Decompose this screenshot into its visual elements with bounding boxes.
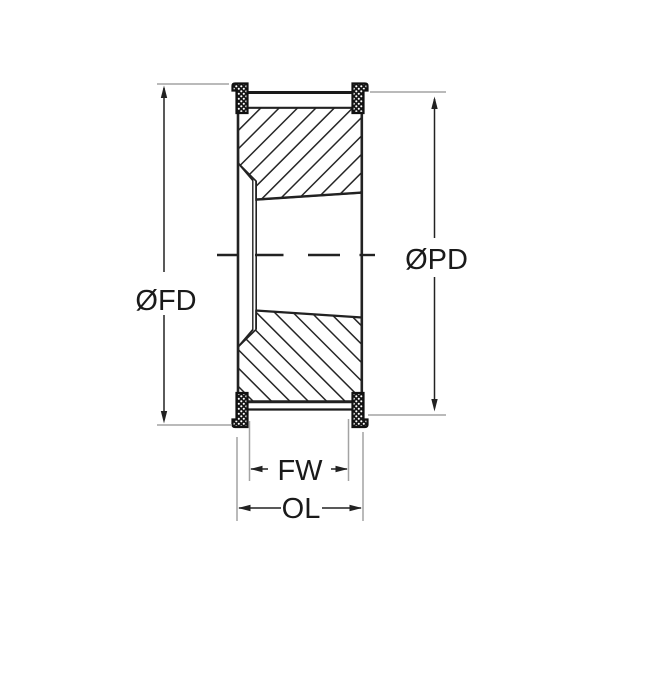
pd-label: ØPD [405, 244, 468, 276]
drawing-canvas: ØFD ØPD FW OL [0, 0, 670, 670]
fd-label: ØFD [135, 285, 196, 317]
pulley-cross-section-drawing: ØFD ØPD FW OL [0, 0, 670, 670]
ol-label: OL [282, 493, 321, 525]
fw-label: FW [277, 455, 323, 487]
